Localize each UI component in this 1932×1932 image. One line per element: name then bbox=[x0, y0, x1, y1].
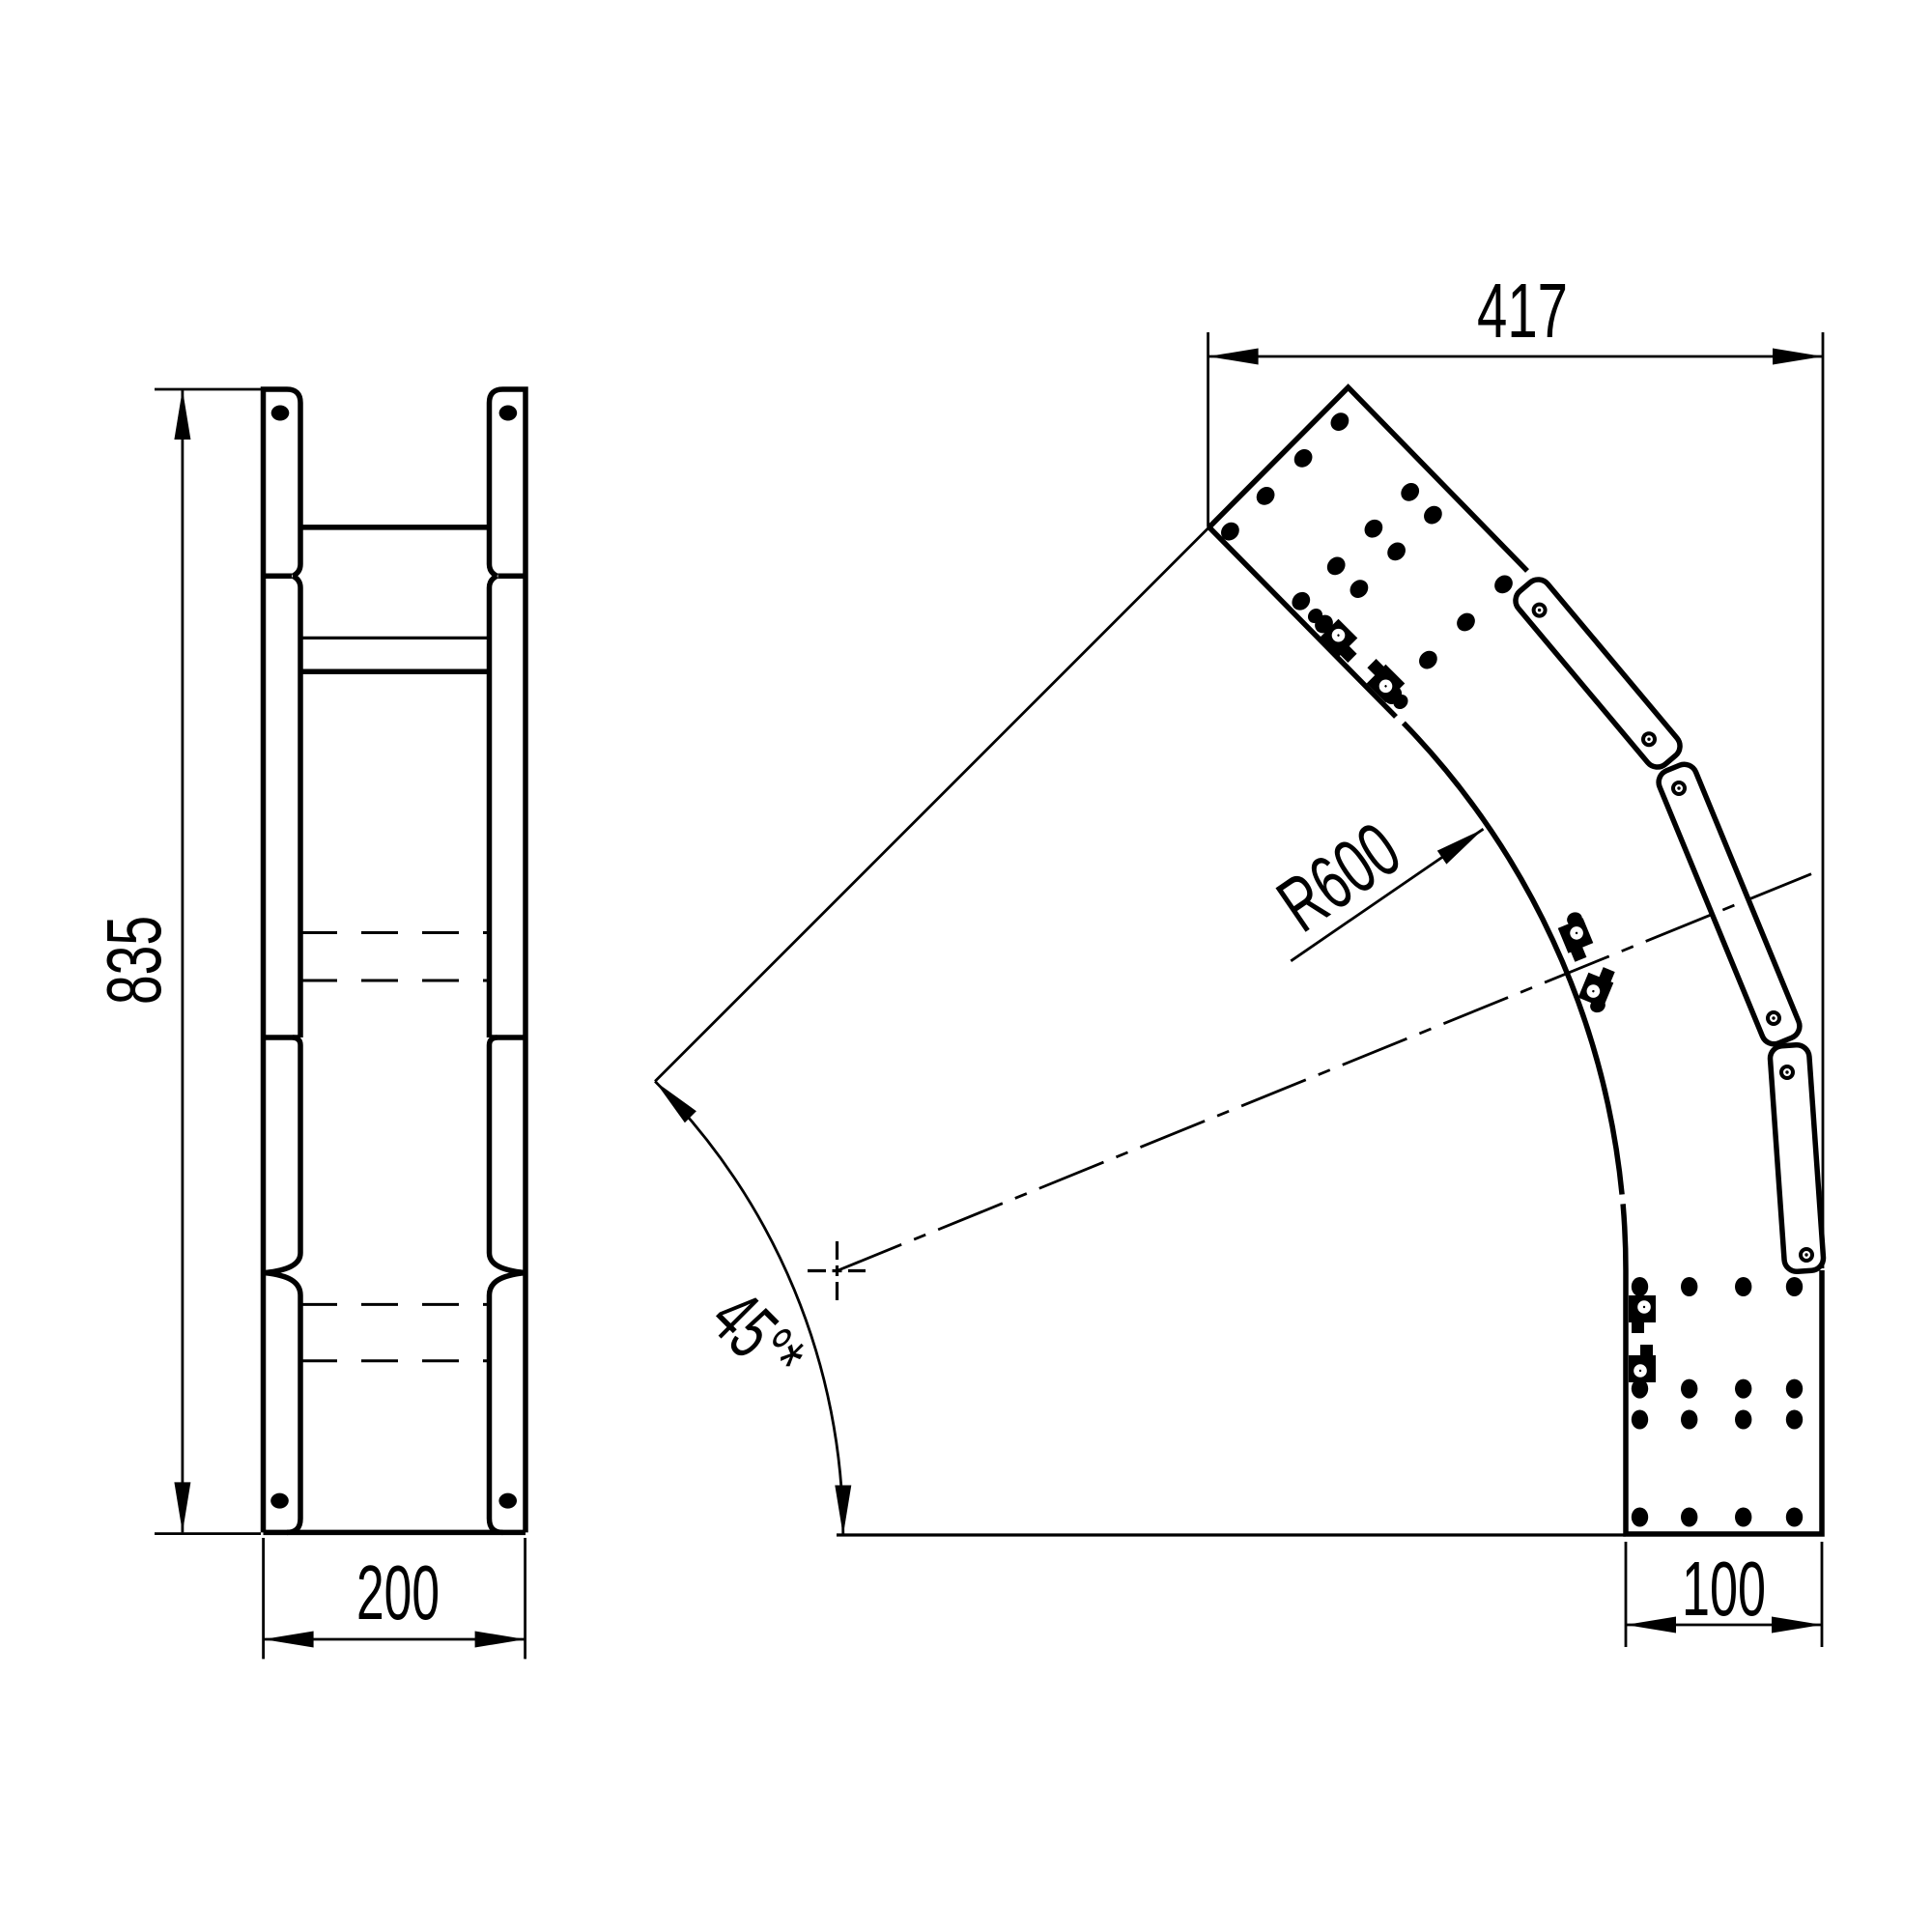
svg-text:200: 200 bbox=[356, 1549, 440, 1635]
svg-text:417: 417 bbox=[1477, 268, 1568, 354]
svg-text:100: 100 bbox=[1682, 1546, 1766, 1632]
svg-text:835: 835 bbox=[91, 916, 177, 1005]
